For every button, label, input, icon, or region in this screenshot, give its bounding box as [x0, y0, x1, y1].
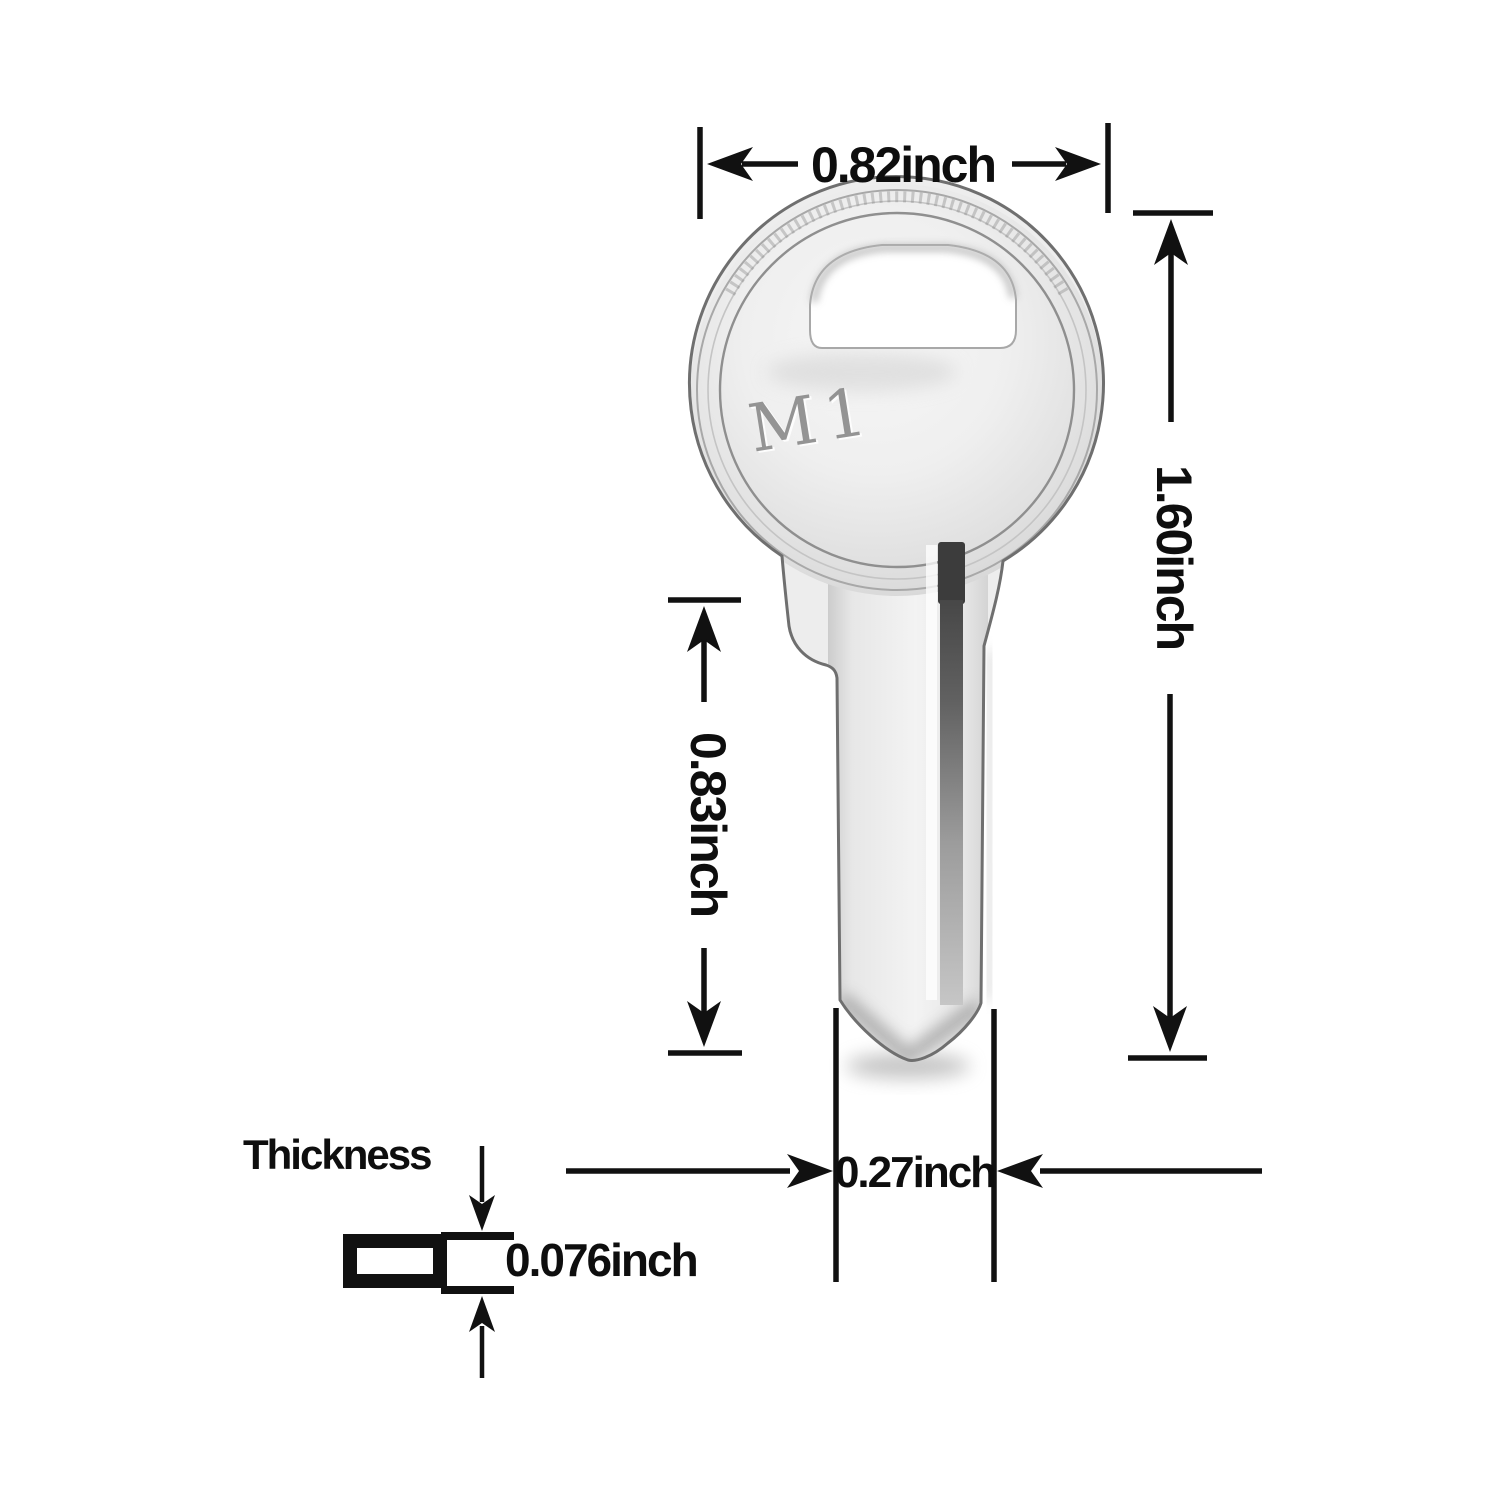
key-groove — [940, 600, 963, 1005]
key-groove-highlight — [926, 545, 937, 1000]
key-right-edge-shadow — [988, 650, 991, 1000]
thickness-label: Thickness — [243, 1131, 431, 1178]
thickness-value: 0.076inch — [505, 1234, 697, 1286]
diagram-canvas: M1 M1 0.82inch 1.60inch 0.83inch — [0, 0, 1500, 1500]
thickness-detail: Thickness 0.076inch — [243, 1131, 697, 1378]
thickness-cross-section — [350, 1241, 440, 1281]
arrowhead-left-icon — [997, 1154, 1043, 1188]
dim-head-width-label: 0.82inch — [811, 137, 995, 193]
arrowhead-right-icon — [787, 1154, 833, 1188]
dim-blade-length: 0.83inch — [668, 600, 742, 1053]
dim-blade-length-label: 0.83inch — [680, 732, 736, 916]
key-illustration: M1 M1 — [689, 177, 1103, 1079]
key-groove-top — [938, 542, 965, 604]
dim-total-height: 1.60inch — [1128, 213, 1213, 1058]
dim-blade-width-label: 0.27inch — [835, 1148, 995, 1197]
key-dimension-diagram: M1 M1 0.82inch 1.60inch 0.83inch — [0, 0, 1500, 1500]
key-surface-details: M1 M1 — [691, 184, 1103, 1075]
dim-total-height-label: 1.60inch — [1146, 465, 1202, 649]
